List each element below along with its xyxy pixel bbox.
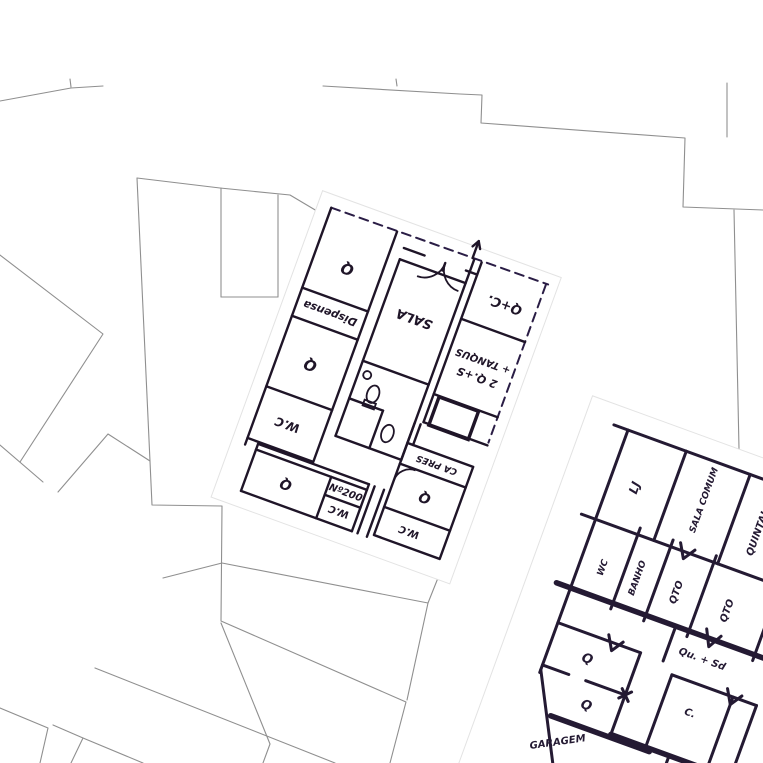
main-plan-paper: Q Dispensa Q W.C SALA Q+C. + TANQUS 2 Q.… <box>211 185 563 584</box>
scanned-cadastral-sketch-mosaic: Q Dispensa Q W.C SALA Q+C. + TANQUS 2 Q.… <box>0 0 763 763</box>
secondary-plan-paper-sheet <box>456 396 763 763</box>
secondary-plan-paper: LJ SALA COMUM QUINTAL WC BANHO QTO QTO Q… <box>456 396 763 763</box>
sketch-canvas: Q Dispensa Q W.C SALA Q+C. + TANQUS 2 Q.… <box>0 0 763 763</box>
